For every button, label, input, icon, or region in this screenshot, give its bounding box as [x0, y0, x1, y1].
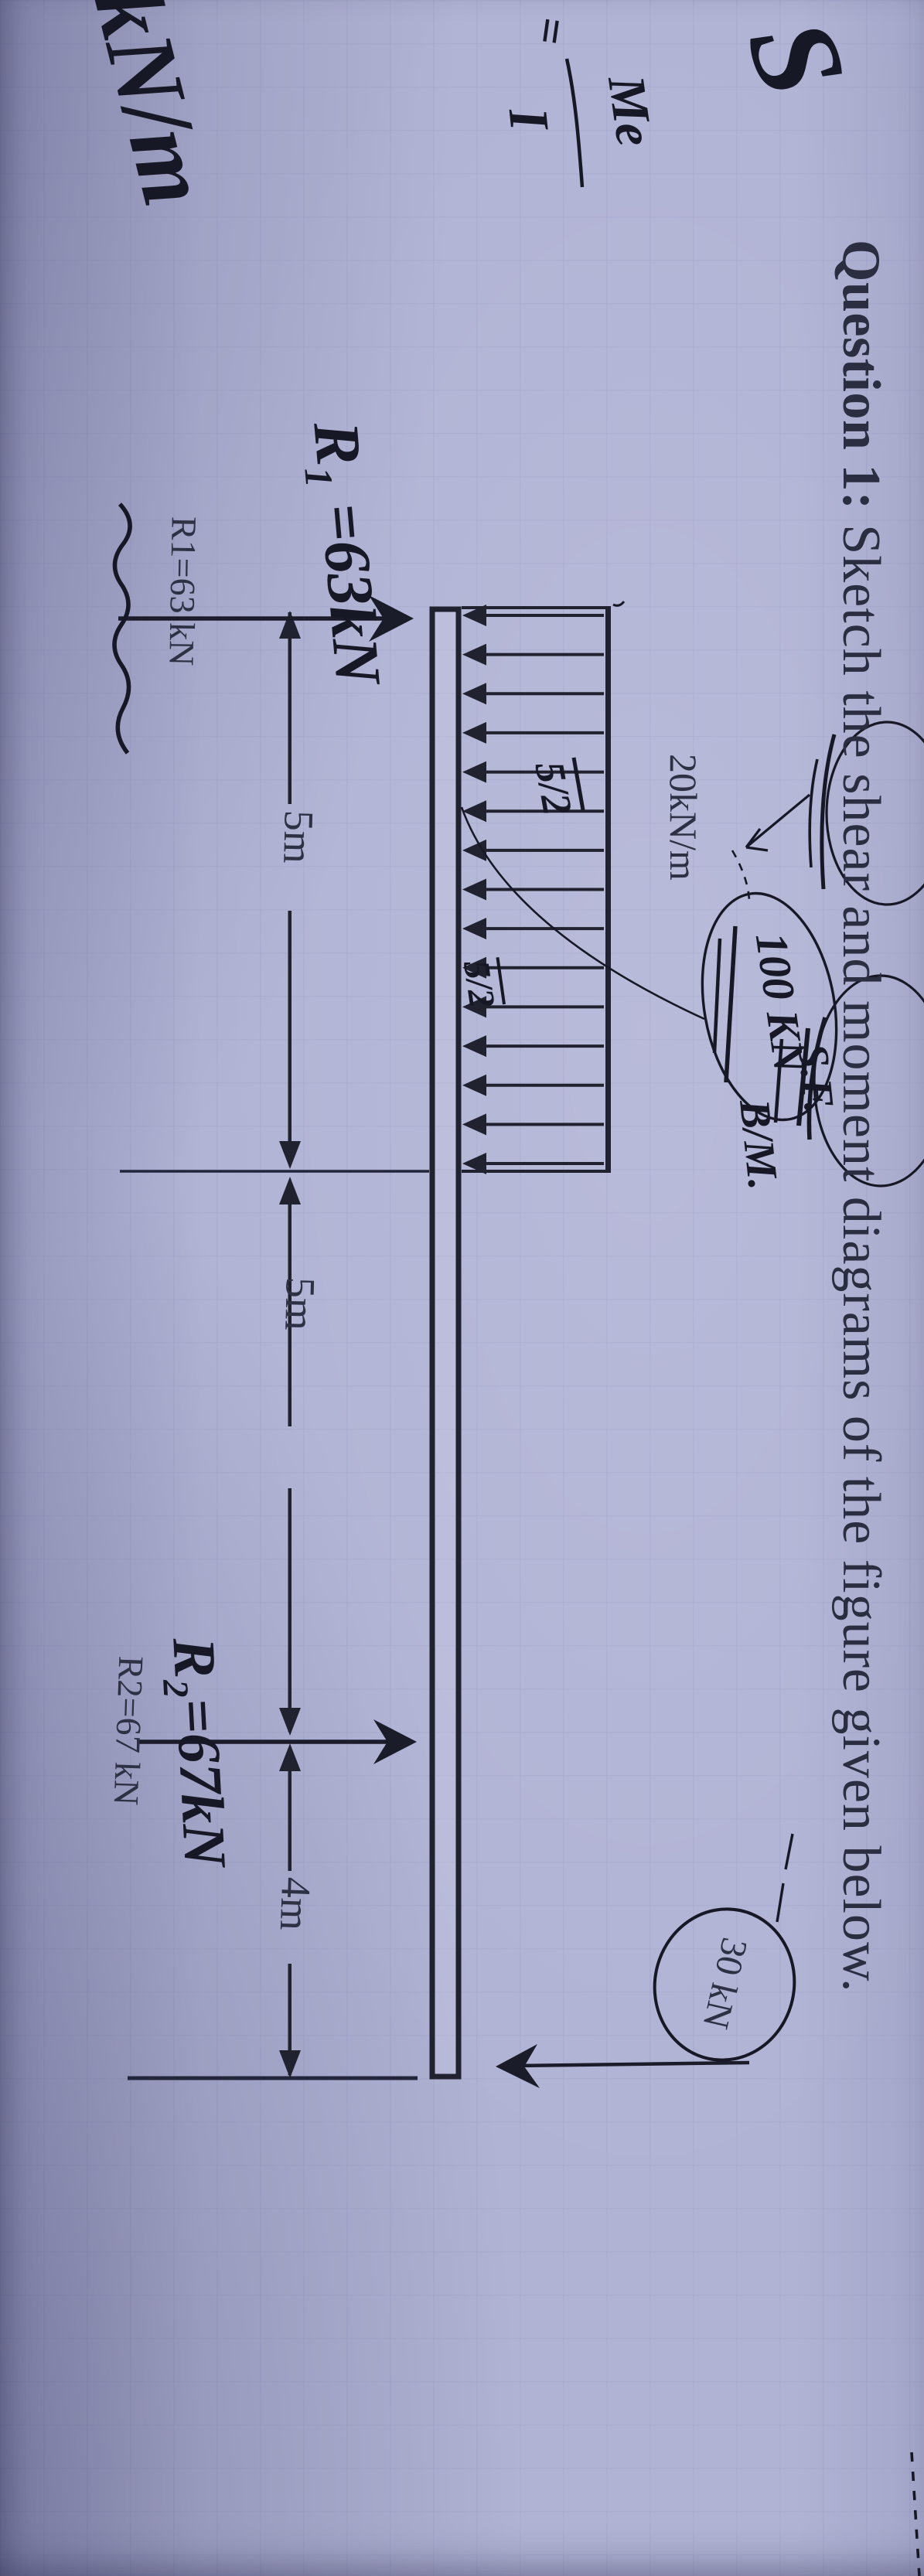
- question-number: Question 1:: [831, 240, 891, 510]
- beam-figure-graphics: [0, 0, 924, 2576]
- load-intensity-label: 20kN/m: [661, 754, 706, 881]
- exam-page: Question 1: Sketch the shear and moment …: [0, 0, 924, 2576]
- hand-strokes: [114, 59, 924, 2576]
- hand-sf-note: S.F.: [788, 1041, 844, 1115]
- dim-label-5m-2: 5m: [275, 1276, 325, 1331]
- hand-bm-note: B/M.: [729, 1097, 788, 1192]
- hand-numerator-Me: Me: [595, 72, 666, 150]
- point-load-arrow: [496, 1896, 808, 2088]
- photo-of-exam-page: Question 1: Sketch the shear and moment …: [0, 0, 924, 2576]
- hand-half-span-2: 5/2: [455, 957, 503, 1010]
- distributed-load: [462, 605, 611, 1174]
- dim-label-4m: 4m: [271, 1876, 320, 1931]
- load-arrows: [462, 605, 604, 1174]
- question-title: Question 1: Sketch the shear and moment …: [830, 240, 892, 1993]
- hand-half-span-1: 5/2: [525, 758, 581, 819]
- extension-lines: [120, 1171, 429, 2078]
- beam: [432, 609, 459, 2077]
- hand-r2-value: R₂=67kN: [159, 1636, 240, 1869]
- reaction-r1-printed: R1=63 kN: [161, 516, 204, 666]
- dim-label-5m-1: 5m: [274, 809, 323, 864]
- question-text: Sketch the shear and moment diagrams of …: [831, 510, 891, 1993]
- reaction-r2-printed: R2=67 kN: [106, 1655, 152, 1806]
